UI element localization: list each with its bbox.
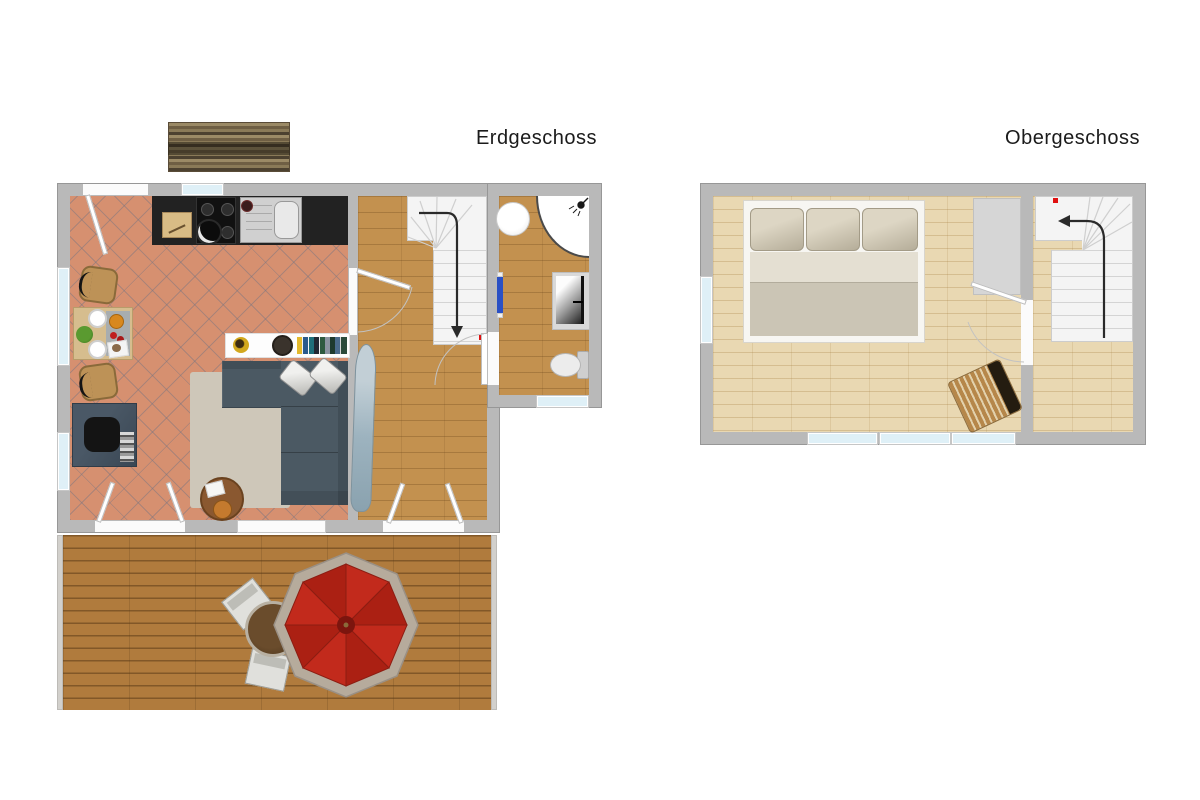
overlay-graphics bbox=[0, 0, 1200, 800]
parasol bbox=[274, 553, 418, 697]
floor-plan-canvas: Erdgeschoss Obergeschoss bbox=[0, 0, 1200, 800]
stair-arrow-down bbox=[419, 213, 463, 338]
stair-fan-lines bbox=[1083, 197, 1132, 250]
stair-arrow-up bbox=[1058, 215, 1104, 338]
shower-head-icon bbox=[569, 198, 588, 216]
stair-fan-lines bbox=[408, 197, 472, 248]
